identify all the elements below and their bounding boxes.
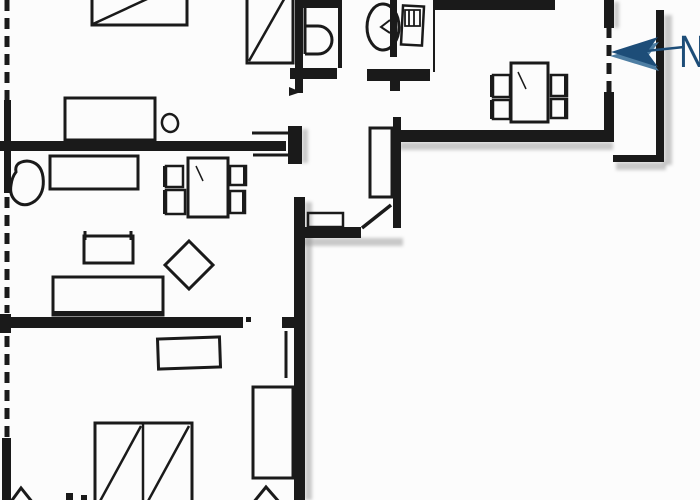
lamp-right [253, 487, 280, 500]
floor-plan: N [0, 0, 700, 500]
shadow [400, 142, 613, 150]
bed-diagonal-right [147, 426, 189, 500]
floor-plan-drawing [0, 0, 700, 500]
living-table [188, 158, 228, 217]
hall-wardrobe [370, 128, 392, 197]
bedroom1-table [65, 98, 155, 140]
wall-bedroom2-top [3, 317, 243, 328]
side-table [84, 236, 133, 263]
kitchen-chair-nw-back [490, 75, 494, 97]
wall-kitchen-bottom [397, 130, 613, 142]
wall-bath-left [295, 0, 303, 93]
sofa [53, 277, 163, 315]
lamp-left [10, 488, 33, 500]
living-chair-sw [166, 190, 185, 214]
living-table-mark [196, 166, 203, 181]
living-chair-ne-back [243, 166, 247, 185]
wall-left-lower [2, 438, 11, 500]
kitchen-chair-se-back [564, 99, 568, 118]
kitchen-chair-ne-back [564, 75, 568, 96]
wall-kitchen-right-lower [604, 92, 614, 142]
wall-bedroom2-stub [282, 317, 302, 328]
desk [157, 337, 220, 369]
wall-kitchen-top [433, 0, 555, 10]
living-chair-se-back [242, 191, 246, 213]
bed-single-top-diagonal [249, 0, 291, 61]
kitchen-table-mark [518, 72, 526, 89]
shadow [305, 202, 312, 500]
bedroom1-stool [160, 112, 180, 134]
door-leaf-entry [362, 205, 391, 228]
lounge-chair-diamond [165, 241, 213, 289]
door-hinge-dot [246, 317, 251, 322]
wall-wing-right [294, 197, 305, 500]
toilet-cistern [303, 0, 340, 8]
kitchen-table [511, 63, 548, 122]
wall-hall-bottom [303, 227, 361, 238]
wall-bath-bottom-left [290, 68, 337, 79]
wall-kitchen-stub [390, 81, 400, 91]
kitchen-chair-nw [493, 75, 510, 97]
wardrobe [253, 387, 293, 478]
shadow [303, 238, 403, 246]
bed-double-top-diagonal [93, 0, 186, 24]
living-chair-nw [166, 166, 183, 187]
shadow [302, 129, 308, 163]
living-chair-nw-back [163, 166, 167, 187]
wall-wc-divider [338, 0, 342, 68]
wall-kitchen-right-upper [604, 0, 614, 28]
balcony-rail-right [656, 10, 664, 160]
floor-mark-b [81, 495, 87, 500]
wall-bath-bottom-right [367, 69, 430, 81]
shadow [614, 2, 619, 28]
fridge-hatch [405, 10, 420, 26]
shadow [664, 15, 672, 165]
kitchen-chair-sw-back [490, 100, 494, 119]
living-chair-sw-back [163, 190, 167, 214]
north-label: N [679, 29, 700, 74]
bed-diagonal-left [99, 426, 141, 500]
kitchen-chair-sw [493, 100, 510, 119]
plan-linework [0, 0, 684, 500]
hall-sideboard [308, 213, 343, 227]
wall-shadows [302, 2, 672, 500]
wall-door-stub [288, 126, 302, 164]
washbasin-tap [381, 20, 390, 33]
armchair [11, 161, 44, 205]
sideboard [50, 156, 138, 189]
wall-living-top [0, 141, 286, 151]
toilet-bowl [305, 26, 332, 54]
balcony-rail-bottom [613, 155, 664, 162]
floor-mark-a [66, 493, 73, 500]
shadow [616, 162, 666, 170]
